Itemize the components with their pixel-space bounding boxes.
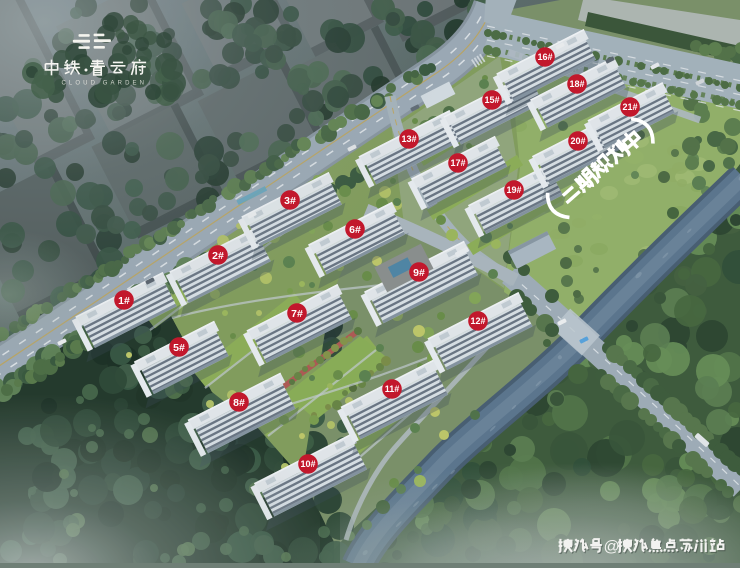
- svg-text:11#: 11#: [385, 384, 400, 394]
- svg-text:16#: 16#: [537, 52, 552, 62]
- svg-text:19#: 19#: [506, 185, 521, 195]
- svg-text:20#: 20#: [570, 136, 585, 146]
- svg-text:18#: 18#: [569, 79, 584, 89]
- svg-text:9#: 9#: [413, 267, 425, 279]
- svg-text:21#: 21#: [622, 102, 637, 112]
- svg-text:7#: 7#: [291, 308, 303, 320]
- svg-text:2#: 2#: [212, 250, 224, 262]
- svg-text:3#: 3#: [284, 195, 296, 207]
- svg-text:5#: 5#: [173, 342, 185, 354]
- svg-text:17#: 17#: [450, 158, 465, 168]
- svg-text:6#: 6#: [349, 224, 361, 236]
- svg-text:15#: 15#: [484, 95, 499, 105]
- svg-text:13#: 13#: [401, 134, 416, 144]
- svg-text:10#: 10#: [300, 459, 315, 469]
- svg-text:1#: 1#: [118, 295, 130, 307]
- svg-text:@: @: [604, 539, 620, 556]
- svg-text:CLOUD GARDEN: CLOUD GARDEN: [62, 81, 148, 87]
- svg-text:12#: 12#: [470, 316, 485, 326]
- svg-text:8#: 8#: [233, 397, 245, 409]
